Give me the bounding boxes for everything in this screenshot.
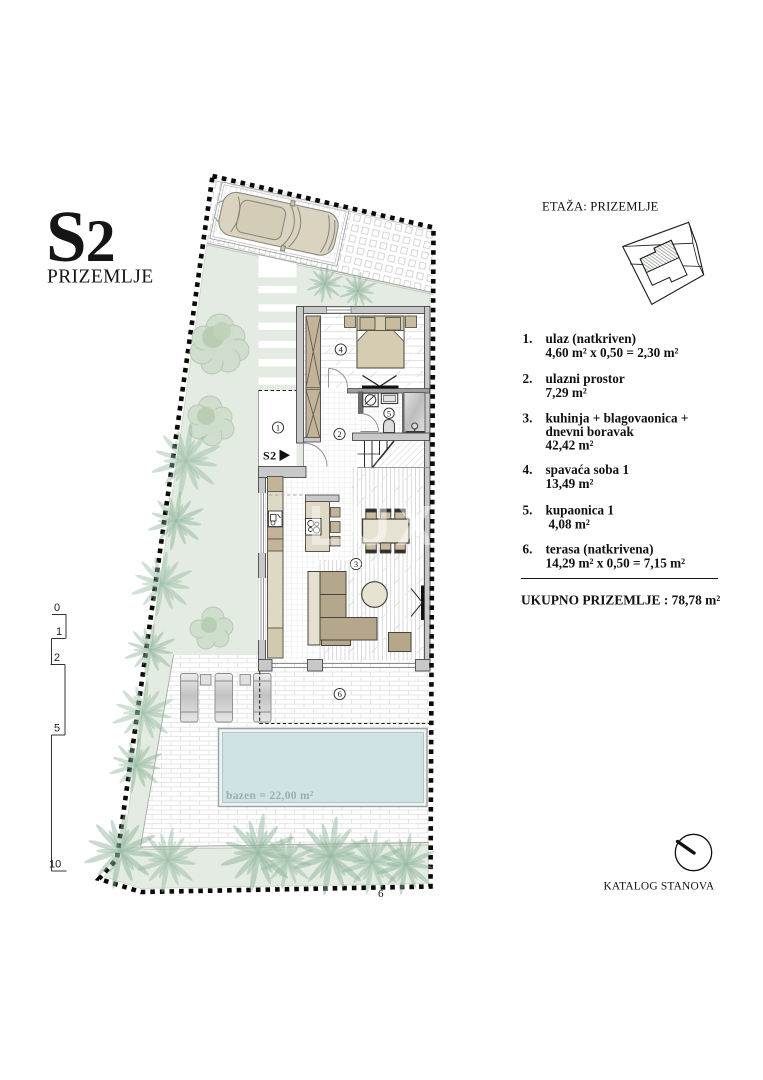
svg-text:6: 6 [378, 888, 384, 900]
svg-text:5.: 5. [523, 503, 533, 518]
svg-text:KATALOG STANOVA: KATALOG STANOVA [604, 881, 715, 893]
svg-text:REAL ESTATE: REAL ESTATE [345, 559, 478, 571]
svg-text:2.: 2. [523, 371, 533, 386]
svg-text:bazen = 22,00 m²: bazen = 22,00 m² [226, 790, 314, 802]
svg-text:ETAŽA: PRIZEMLJE: ETAŽA: PRIZEMLJE [542, 200, 659, 214]
svg-text:14,29 m² x 0,50 = 7,15 m²: 14,29 m² x 0,50 = 7,15 m² [546, 556, 686, 571]
svg-text:4: 4 [339, 345, 344, 355]
svg-text:ulazni prostor: ulazni prostor [546, 371, 625, 386]
svg-text:4,60 m² x 0,50 = 2,30 m²: 4,60 m² x 0,50 = 2,30 m² [546, 345, 679, 360]
svg-text:1.: 1. [523, 331, 533, 346]
svg-text:LUX: LUX [308, 494, 440, 558]
svg-text:1: 1 [56, 626, 62, 638]
svg-text:spavaća soba 1: spavaća soba 1 [546, 462, 630, 477]
svg-text:3.: 3. [523, 411, 533, 426]
svg-text:4,08 m²: 4,08 m² [549, 517, 590, 532]
svg-text:42,42 m²: 42,42 m² [546, 438, 594, 453]
svg-text:13,49 m²: 13,49 m² [546, 476, 594, 491]
svg-text:6: 6 [338, 689, 342, 699]
svg-text:ulaz (natkriven): ulaz (natkriven) [546, 331, 636, 346]
svg-text:kupaonica 1: kupaonica 1 [546, 503, 615, 518]
svg-text:4.: 4. [523, 462, 533, 477]
svg-text:5: 5 [387, 408, 391, 418]
svg-text:1: 1 [276, 423, 280, 433]
svg-text:S2: S2 [46, 196, 116, 277]
svg-text:2: 2 [54, 652, 60, 664]
svg-text:PRIZEMLJE: PRIZEMLJE [47, 267, 154, 288]
svg-text:6.: 6. [523, 542, 533, 557]
svg-text:S2: S2 [263, 449, 277, 463]
svg-text:5: 5 [54, 723, 60, 735]
svg-text:terasa (natkrivena): terasa (natkrivena) [546, 542, 654, 557]
svg-text:10: 10 [49, 859, 61, 871]
svg-text:0: 0 [54, 602, 60, 614]
svg-text:7,29 m²: 7,29 m² [546, 385, 587, 400]
svg-text:UKUPNO PRIZEMLJE : 78,78 m²: UKUPNO PRIZEMLJE : 78,78 m² [521, 593, 720, 608]
svg-text:2: 2 [337, 429, 341, 439]
